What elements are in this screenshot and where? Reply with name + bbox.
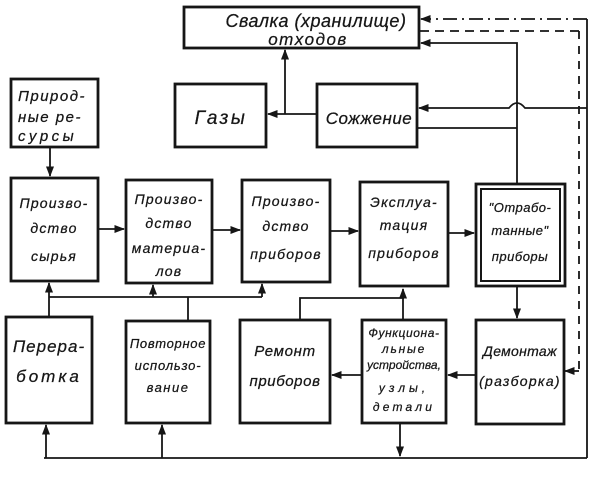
svg-text:Природ-: Природ- [18, 88, 86, 105]
svg-text:Газы: Газы [195, 108, 248, 129]
svg-text:дство: дство [30, 220, 77, 236]
svg-text:Эксплуа-: Эксплуа- [370, 194, 438, 210]
svg-text:Сожжение: Сожжение [326, 109, 412, 128]
svg-text:Демонтаж: Демонтаж [481, 343, 558, 359]
svg-text:приборы: приборы [492, 249, 548, 264]
svg-text:Произво-: Произво- [134, 191, 203, 207]
svg-text:Ремонт: Ремонт [254, 343, 316, 360]
svg-text:льные: льные [381, 342, 426, 356]
svg-text:отходов: отходов [268, 30, 348, 49]
svg-text:использо-: использо- [135, 358, 202, 373]
svg-text:ботка: ботка [16, 367, 82, 386]
svg-text:тация: тация [380, 217, 429, 233]
svg-text:вание: вание [147, 380, 190, 395]
svg-text:"Отрабо-: "Отрабо- [489, 200, 552, 215]
svg-text:дство: дство [262, 218, 309, 234]
svg-text:Повторное: Повторное [130, 336, 206, 351]
svg-text:Перера-: Перера- [13, 337, 85, 356]
svg-text:Функциона-: Функциона- [368, 326, 439, 340]
svg-text:сурсы: сурсы [18, 128, 77, 145]
svg-text:лов: лов [155, 263, 183, 279]
svg-text:приборов: приборов [368, 245, 439, 261]
svg-text:Свалка (хранилище): Свалка (хранилище) [226, 11, 407, 31]
svg-text:узлы,: узлы, [378, 381, 429, 395]
svg-text:устройства,: устройства, [366, 358, 441, 372]
svg-text:дство: дство [145, 215, 192, 231]
svg-text:сырья: сырья [31, 248, 77, 264]
svg-text:приборов: приборов [250, 246, 321, 262]
svg-text:ные ре-: ные ре- [18, 109, 82, 126]
svg-text:Произво-: Произво- [19, 195, 88, 211]
svg-text:материа-: материа- [132, 240, 206, 256]
svg-text:приборов: приборов [249, 373, 320, 390]
svg-text:танные": танные" [491, 223, 549, 238]
svg-text:детали: детали [373, 400, 435, 414]
svg-text:Произво-: Произво- [251, 193, 320, 209]
svg-text:(разборка): (разборка) [479, 373, 561, 389]
